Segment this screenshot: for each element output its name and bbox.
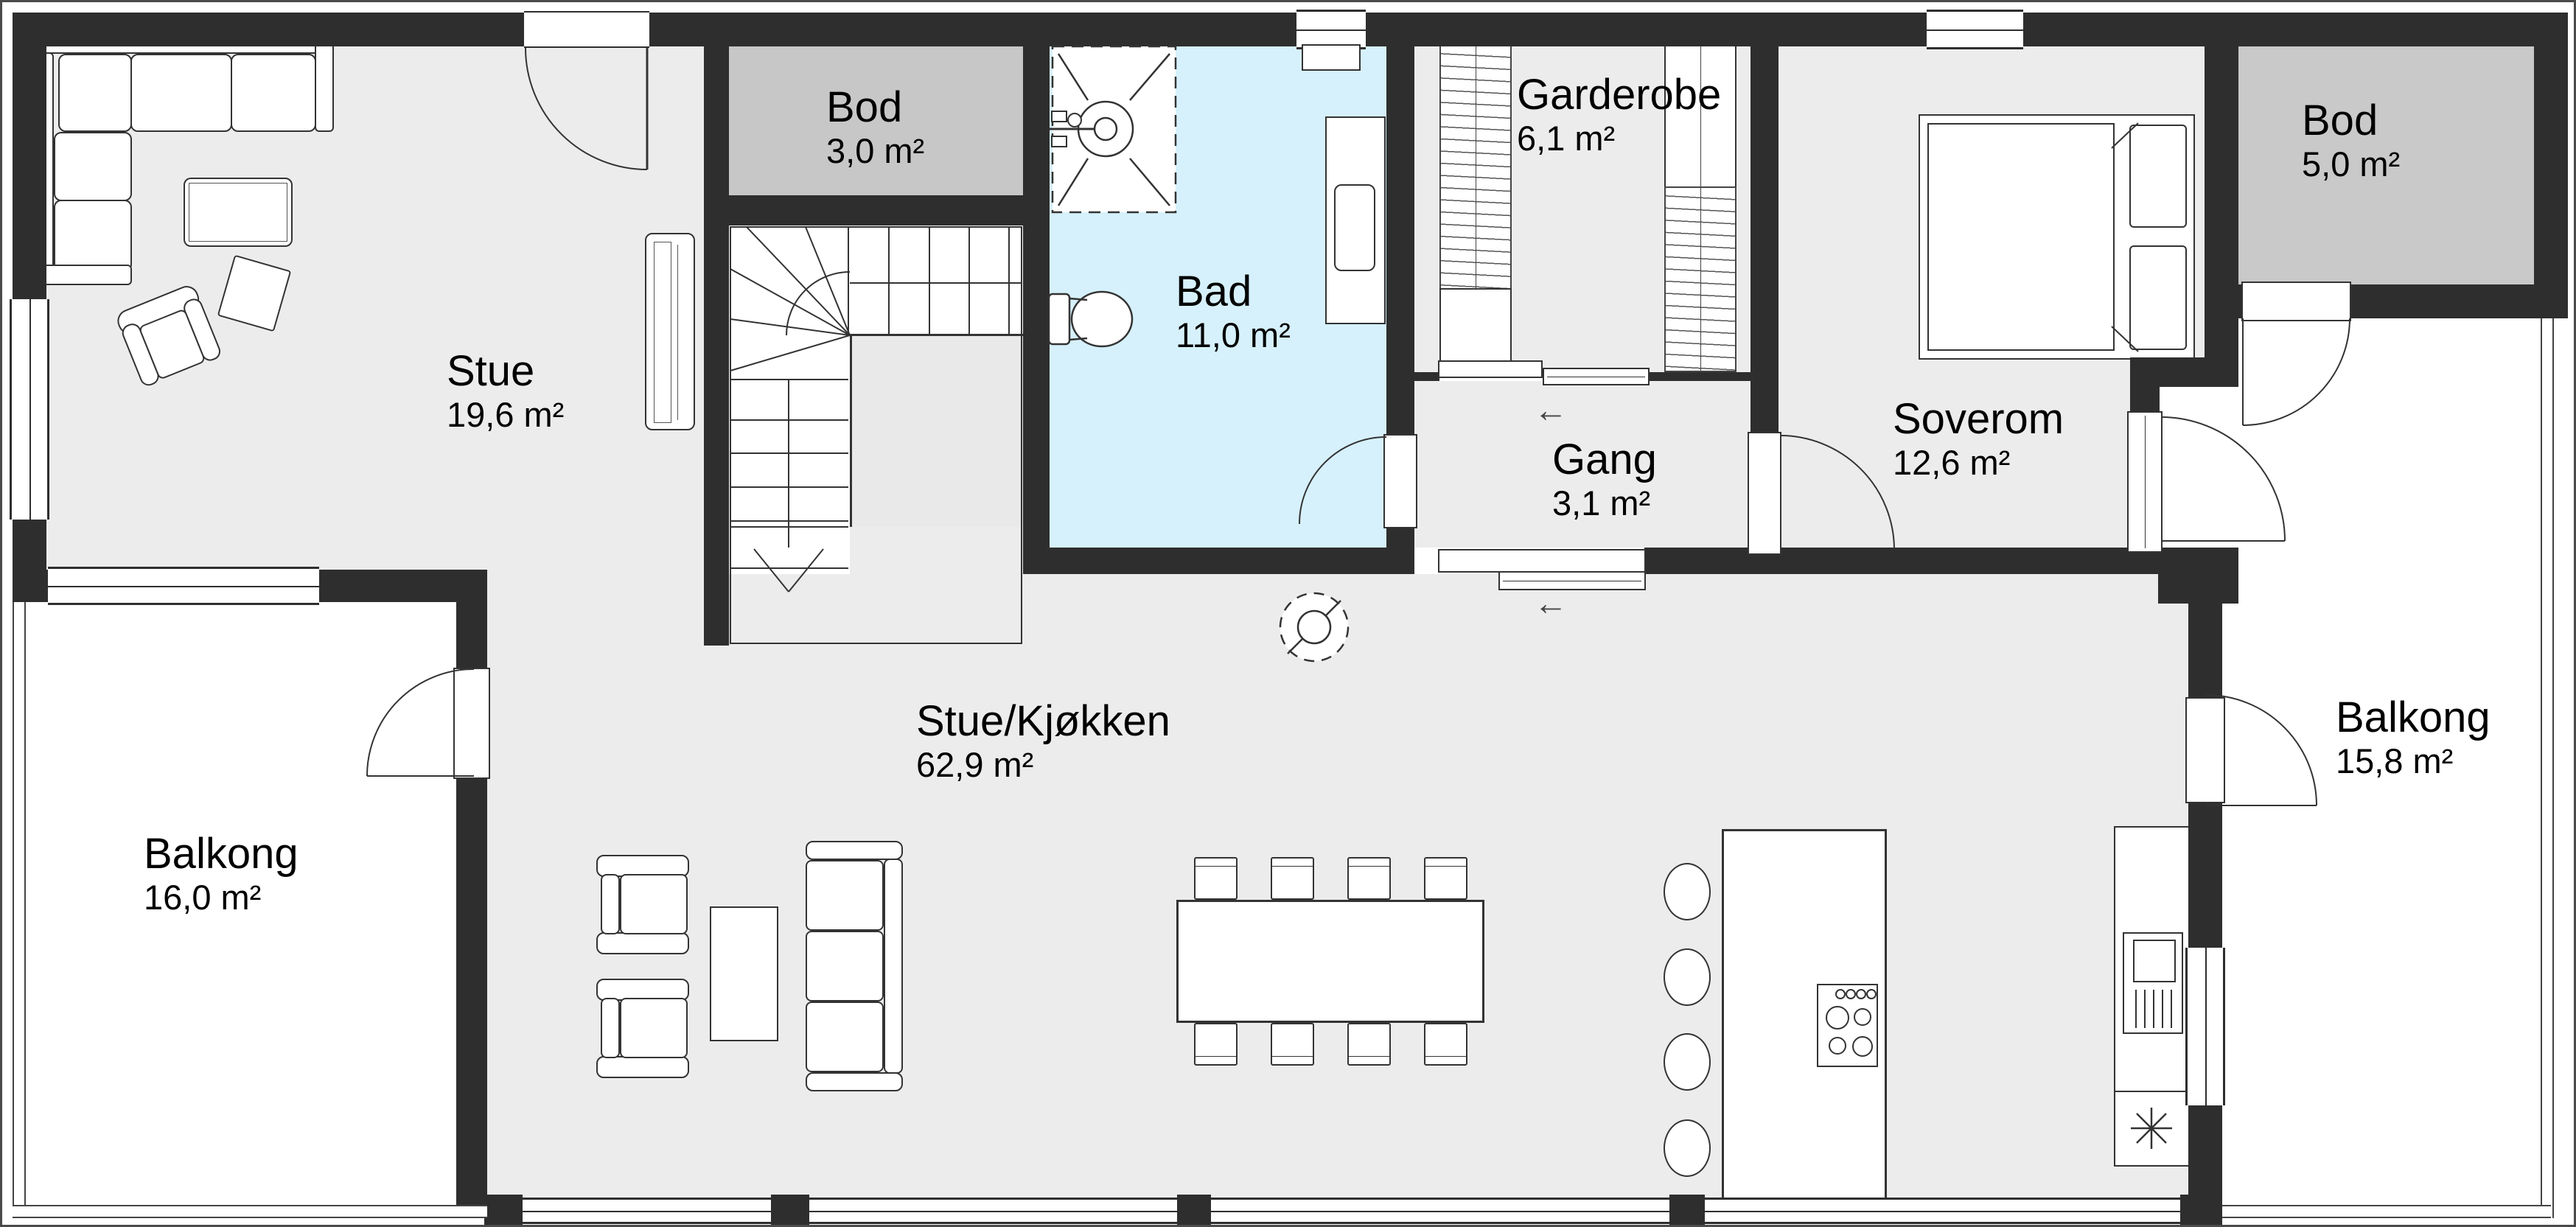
dining-chair-b1 — [1194, 1023, 1238, 1066]
freezer-divider — [2115, 1091, 2188, 1092]
post-sw — [484, 1195, 523, 1227]
label-gang: Gang 3,1 m² — [1552, 437, 1657, 524]
railing-balcony-right-bottom — [2222, 1205, 2551, 1218]
window-bottom-2 — [809, 1198, 1177, 1224]
post-b1 — [771, 1195, 809, 1227]
railing-balcony-left — [13, 602, 26, 1218]
wall-bod3-bottom — [704, 195, 1025, 226]
window-soverom-top — [1927, 10, 2023, 49]
slide-arrow-gang-icon: ← — [1534, 592, 1568, 614]
post-se — [2180, 1195, 2222, 1227]
living-armchair-2 — [596, 979, 689, 1078]
bar-stool-2 — [1664, 948, 1711, 1006]
cooktop — [1817, 984, 1878, 1067]
dining-chair-t1 — [1194, 857, 1238, 900]
room-name: Stue — [447, 349, 564, 394]
chair-line — [1349, 866, 1389, 867]
railing-balcony-right — [2541, 318, 2554, 1218]
bed-mattress — [1927, 123, 2115, 351]
chair-line — [1425, 1056, 1466, 1057]
door-gap-main-balcony-right — [2185, 697, 2225, 803]
wall-bad-bottom — [1023, 548, 1414, 574]
chair-line — [1349, 1056, 1389, 1057]
room-name: Bod — [2302, 98, 2400, 144]
corner-sofa-seat-3 — [231, 54, 316, 132]
tv-cabinet-inner — [654, 242, 671, 423]
window-bad-top — [1296, 10, 1366, 49]
bed-pillow-2 — [2129, 245, 2187, 350]
room-name: Soverom — [1893, 396, 2064, 442]
room-area: 6,1 m² — [1517, 118, 1721, 159]
chair-line — [1195, 866, 1236, 867]
corner-sofa-seat-5 — [54, 200, 132, 272]
door-gap-bad — [1383, 434, 1417, 528]
corner-sofa-seat-4 — [54, 132, 132, 201]
wall-garderobe-gang-stub-r — [1650, 372, 1751, 381]
bar-stool-1 — [1664, 863, 1711, 920]
floor-stue-kjokken — [486, 574, 2188, 1198]
corner-sofa-seat-1 — [58, 54, 132, 132]
stair-lower-floor — [850, 527, 1023, 646]
slider-garderobe-leaf2 — [1543, 368, 1650, 385]
living-armchair-1 — [596, 855, 689, 954]
tv-cabinet-line — [677, 245, 678, 420]
wall-stair-west — [704, 226, 729, 646]
room-name: Balkong — [144, 831, 299, 877]
wardrobe-left-divider — [1476, 46, 1476, 288]
floor-plan: ← ← — [0, 0, 2576, 1227]
slider-gang-leaf2 — [1498, 571, 1646, 590]
room-name: Bad — [1176, 269, 1291, 315]
chair-line — [1195, 1056, 1236, 1057]
dining-chair-b3 — [1347, 1023, 1391, 1066]
door-gap-bod5 — [2241, 282, 2351, 321]
tv-cabinet — [645, 233, 695, 430]
window-bottom-4 — [1705, 1198, 2180, 1224]
window-stue-left — [10, 299, 49, 520]
bad-vanity — [1325, 116, 1386, 324]
slider-garderobe-leaf1 — [1438, 360, 1543, 378]
dining-chair-t2 — [1271, 857, 1314, 900]
armchair1-back — [601, 874, 620, 934]
wall-soverom-east-upper — [2205, 13, 2238, 381]
door-leaf-soverom-balcony — [2127, 411, 2163, 553]
label-balkong-right: Balkong 15,8 m² — [2336, 695, 2491, 782]
label-stue-kjokken: Stue/Kjøkken 62,9 m² — [916, 699, 1170, 786]
armchair1-arm-bottom — [596, 932, 689, 954]
slider-gang-leaf1 — [1438, 549, 1646, 573]
window-bad-sill — [1302, 44, 1361, 71]
leaf-line — [2145, 416, 2146, 548]
sofa-seat-2 — [806, 931, 884, 1001]
label-balkong-left: Balkong 16,0 m² — [144, 831, 299, 918]
wardrobe-left — [1439, 44, 1512, 290]
wall-bad-west — [1023, 43, 1050, 574]
armchair2-seat — [620, 998, 688, 1058]
window-stue-balcony — [48, 567, 319, 605]
room-area: 3,1 m² — [1552, 483, 1657, 524]
room-area: 16,0 m² — [144, 877, 299, 918]
room-area: 12,6 m² — [1893, 442, 2064, 483]
wardrobe-right-divider — [1700, 188, 1701, 371]
chair-line — [1425, 866, 1466, 867]
room-name: Bod — [826, 85, 924, 130]
door-gap-main-balcony-left — [453, 668, 490, 779]
bad-sink — [1334, 184, 1375, 271]
slide-arrow-garderobe-icon: ← — [1534, 399, 1568, 421]
wardrobe-left-cabinet — [1439, 288, 1512, 372]
door-gap-gang-soverom — [1748, 432, 1781, 555]
wall-bod5-east — [2534, 13, 2568, 318]
living-coffee-table — [710, 906, 778, 1041]
leaf-line — [1547, 377, 1645, 377]
room-area: 3,0 m² — [826, 130, 924, 172]
sofa-arm-top — [806, 841, 903, 860]
label-bad: Bad 11,0 m² — [1176, 269, 1291, 356]
room-name: Gang — [1552, 437, 1657, 483]
wall-top — [13, 13, 2568, 46]
armchair1-seat — [620, 874, 688, 934]
chair-line — [1272, 866, 1313, 867]
railing-balcony-left-bottom — [13, 1205, 487, 1218]
post-b3 — [1669, 1195, 1705, 1227]
bar-stool-4 — [1664, 1119, 1711, 1177]
entry-door-opening — [524, 11, 649, 48]
room-area: 11,0 m² — [1176, 315, 1291, 356]
dining-chair-t4 — [1424, 857, 1467, 900]
window-bottom-1 — [523, 1198, 771, 1224]
stue-coffee-table — [184, 178, 293, 247]
leaf-line — [1503, 581, 1641, 581]
chair-line — [1272, 1056, 1313, 1057]
sink-basin — [2133, 940, 2176, 982]
sofa-back — [884, 859, 903, 1074]
stair-landing — [850, 334, 1023, 527]
room-area: 19,6 m² — [447, 394, 564, 436]
room-name: Garderobe — [1517, 72, 1721, 118]
armchair2-arm-bottom — [596, 1056, 689, 1078]
room-area: 5,0 m² — [2302, 144, 2400, 185]
window-bottom-3 — [1211, 1198, 1669, 1224]
label-stue: Stue 19,6 m² — [447, 349, 564, 436]
room-area: 62,9 m² — [916, 744, 1170, 786]
dining-chair-b2 — [1271, 1023, 1314, 1066]
room-area: 15,8 m² — [2336, 741, 2491, 782]
dining-chair-t3 — [1347, 857, 1391, 900]
bed-pillow-1 — [2129, 125, 2187, 228]
kitchen-sink-unit — [2123, 932, 2183, 1034]
wardrobe-right — [1664, 186, 1736, 372]
window-kitchen-right — [2185, 948, 2225, 1105]
wall-garderobe-gang-stub-l — [1414, 372, 1439, 381]
wall-right-lower — [2188, 574, 2222, 1206]
sofa-seat-3 — [806, 1001, 884, 1072]
stue-coffee-table-inner — [189, 183, 287, 242]
armchair2-back — [601, 998, 620, 1058]
label-soverom: Soverom 12,6 m² — [1893, 396, 2064, 483]
label-bod-entry: Bod 3,0 m² — [826, 85, 924, 172]
label-garderobe: Garderobe 6,1 m² — [1517, 72, 1721, 159]
dining-table — [1176, 900, 1484, 1023]
label-bod-balcony: Bod 5,0 m² — [2302, 98, 2400, 185]
dining-chair-b4 — [1424, 1023, 1467, 1066]
sofa-arm-bottom — [806, 1072, 903, 1091]
living-sofa — [800, 841, 904, 1091]
bar-stool-3 — [1664, 1033, 1711, 1091]
sofa-seat-1 — [806, 860, 884, 931]
room-name: Balkong — [2336, 695, 2491, 741]
post-b2 — [1177, 1195, 1211, 1227]
room-name: Stue/Kjøkken — [916, 699, 1170, 744]
corner-sofa-seat-2 — [130, 54, 232, 132]
